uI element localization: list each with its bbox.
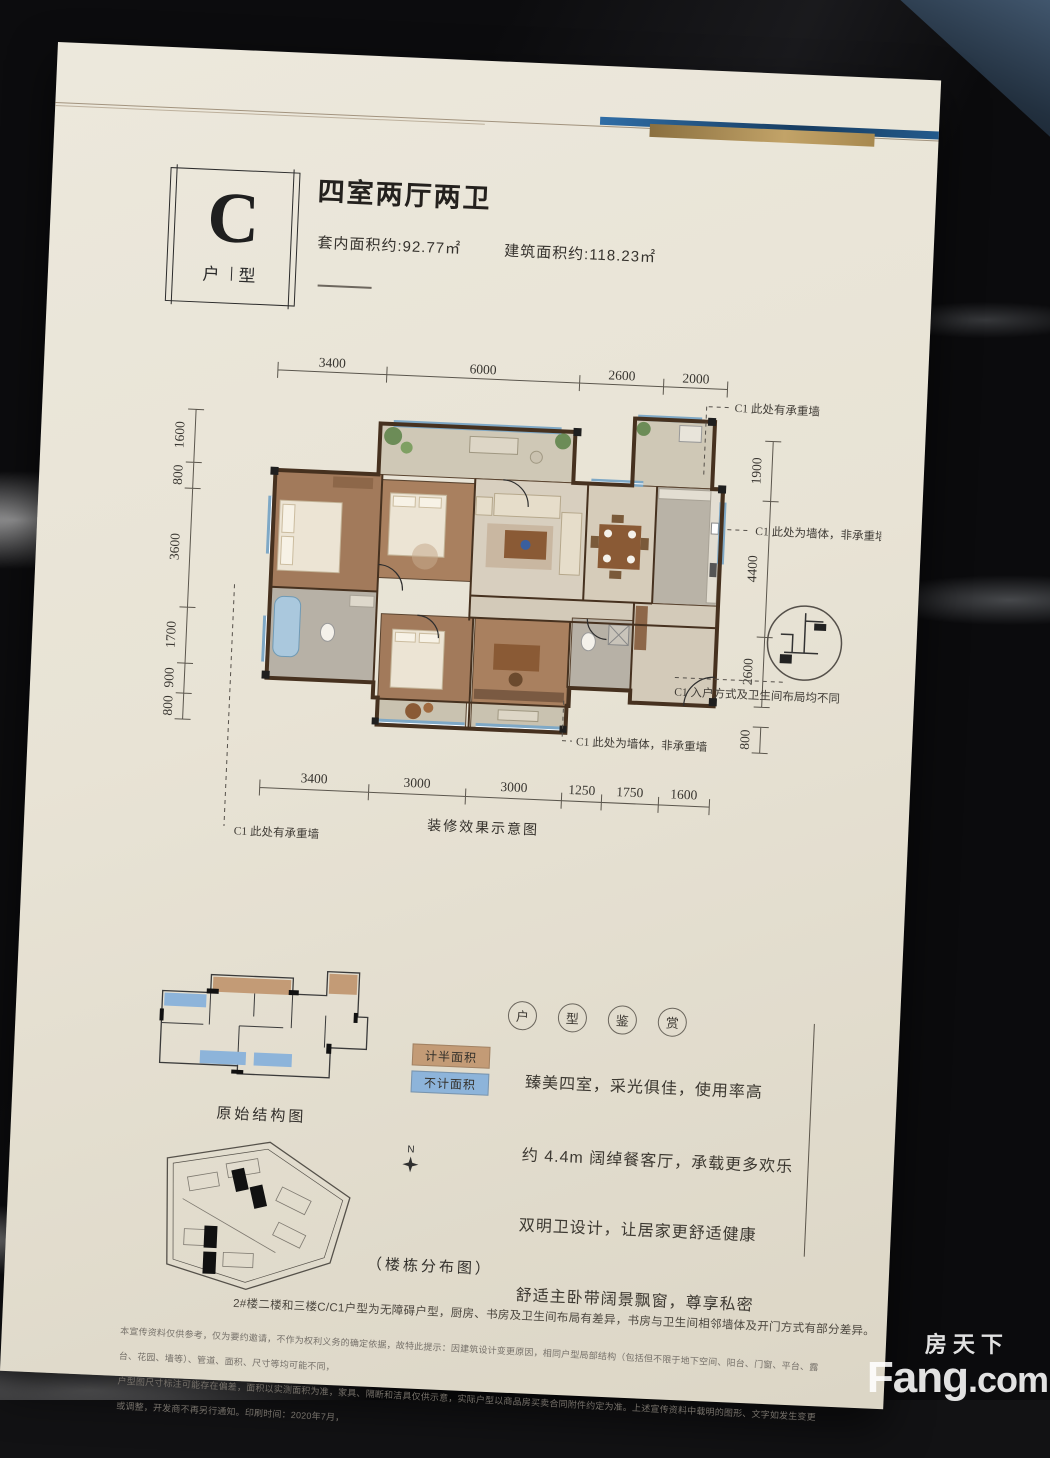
svg-text:C1 此处有承重墙: C1 此处有承重墙	[734, 401, 820, 419]
floorplan-detail-circle	[766, 605, 843, 682]
svg-text:3000: 3000	[403, 775, 431, 791]
feature-item: 臻美四室，采光俱佳，使用率高	[525, 1068, 764, 1102]
gross-area: 建筑面积约:118.23㎡	[504, 243, 657, 267]
svg-text:2000: 2000	[682, 371, 710, 387]
feature-item: 双明卫设计，让居家更舒适健康	[518, 1211, 757, 1245]
svg-text:1900: 1900	[748, 457, 764, 485]
page-title: 四室两厅两卫	[317, 169, 493, 216]
site-boundary	[162, 1138, 352, 1294]
structure-diagram-svg	[140, 952, 386, 1102]
svg-text:1700: 1700	[163, 620, 179, 648]
svg-text:800: 800	[170, 464, 186, 485]
svg-text:3000: 3000	[500, 779, 528, 795]
structure-half-area-zones	[213, 969, 358, 998]
svg-text:1600: 1600	[670, 786, 698, 802]
inner-area: 套内面积约:92.77㎡	[317, 235, 461, 258]
structure-caption: 原始结构图	[171, 1100, 352, 1129]
svg-text:900: 900	[161, 667, 177, 688]
svg-text:800: 800	[160, 695, 176, 716]
site-plan-svg	[123, 1126, 380, 1307]
svg-text:3600: 3600	[167, 533, 183, 561]
site-plan-caption: （楼栋分布图）	[367, 1253, 494, 1279]
svg-text:1600: 1600	[171, 421, 187, 449]
features-heading-char: 型	[557, 1003, 587, 1033]
features-heading-char: 赏	[657, 1007, 687, 1037]
legend-half-area: 计半面积	[412, 1043, 491, 1068]
svg-text:800: 800	[737, 729, 753, 750]
unit-type-logo-frame	[171, 164, 295, 309]
top-rule-secondary	[55, 105, 485, 125]
area-underline	[318, 285, 372, 289]
features-heading-char: 户	[507, 1001, 537, 1031]
svg-text:1750: 1750	[616, 784, 644, 800]
svg-text:2600: 2600	[740, 658, 756, 686]
svg-text:3400: 3400	[300, 770, 328, 786]
svg-text:C1 此处有承重墙: C1 此处有承重墙	[233, 823, 319, 841]
features-divider-line	[804, 1024, 815, 1257]
legend-excluded-area: 不计面积	[411, 1070, 490, 1095]
site-lots	[180, 1155, 313, 1270]
svg-text:6000: 6000	[469, 361, 497, 377]
svg-text:4400: 4400	[744, 555, 760, 583]
features-heading: 户 型 鉴 赏	[507, 1001, 687, 1038]
floorplan-svg: 3400 6000 2600 2000 3400 3000 3000 1250 …	[103, 321, 889, 969]
site-highlighted-buildings	[202, 1166, 268, 1276]
disclaimer: 本宣传资料仅供参考，仅为要约邀请，不作为权利义务的确定依据，故特此提示：因建筑设…	[116, 1319, 826, 1456]
svg-text:3400: 3400	[318, 355, 346, 371]
svg-text:C1 此处为墙体，非承重墙: C1 此处为墙体，非承重墙	[755, 524, 887, 544]
compass: N	[397, 1144, 424, 1179]
area-figures: 套内面积约:92.77㎡ 建筑面积约:118.23㎡	[317, 232, 694, 269]
svg-text:2600: 2600	[608, 367, 636, 383]
compass-star-icon	[401, 1155, 420, 1174]
svg-text:C1 此处为墙体，非承重墙: C1 此处为墙体，非承重墙	[576, 734, 708, 754]
plan-caption: 装修效果示意图	[427, 817, 540, 839]
feature-item: 约 4.4m 阔绰餐客厅，承载更多欢乐	[521, 1141, 793, 1177]
structure-legend: 计半面积 不计面积	[410, 1043, 490, 1100]
features-heading-char: 鉴	[607, 1005, 637, 1035]
floorplan-flyer-page: C 户 型 四室两厅两卫 套内面积约:92.77㎡ 建筑面积约:118.23㎡	[0, 42, 941, 1409]
svg-text:1250: 1250	[568, 782, 596, 798]
structure-excluded-zones	[162, 993, 295, 1068]
unit-type-logo: C 户 型	[165, 167, 301, 307]
